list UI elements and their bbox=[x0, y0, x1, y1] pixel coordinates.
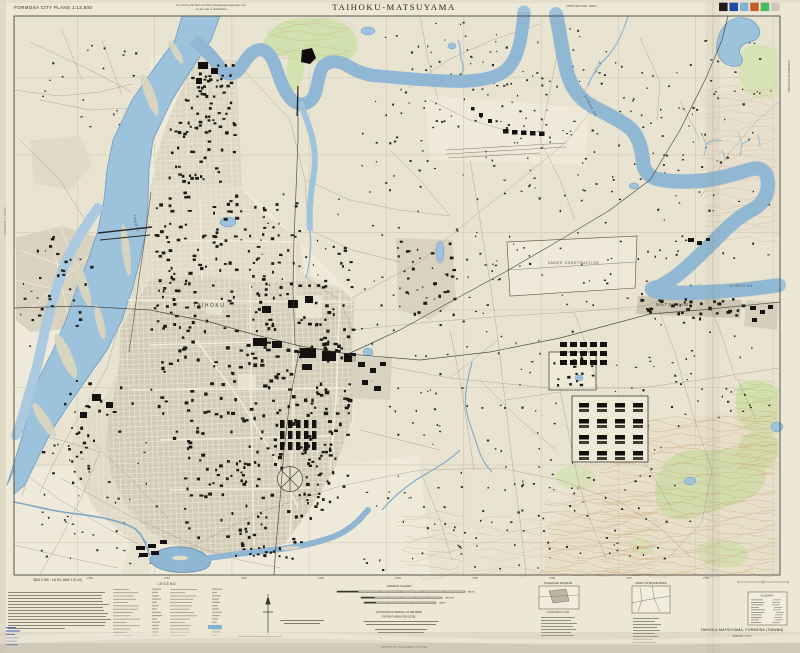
svg-text:2750: 2750 bbox=[87, 576, 93, 580]
svg-text:FORMOSA CITY PLANS 1:12,500: FORMOSA CITY PLANS 1:12,500 bbox=[14, 5, 92, 10]
svg-text:2751: 2751 bbox=[164, 576, 170, 580]
svg-text:TAIHOKU-MATSUYAMA: TAIHOKU-MATSUYAMA bbox=[787, 60, 791, 93]
svg-text:2754: 2754 bbox=[395, 576, 401, 580]
svg-text:TAIHOKU: TAIHOKU bbox=[193, 303, 225, 309]
svg-text:YARDS: YARDS bbox=[439, 602, 447, 605]
svg-text:MILES: MILES bbox=[468, 592, 475, 594]
svg-text:COMPILED IN 1944: COMPILED IN 1944 bbox=[547, 611, 570, 614]
svg-text:MATSUYAMA: MATSUYAMA bbox=[656, 302, 693, 307]
svg-text:2753: 2753 bbox=[318, 576, 324, 580]
svg-text:LEGEND: LEGEND bbox=[158, 582, 177, 586]
svg-text:2752: 2752 bbox=[241, 576, 247, 580]
svg-text:UNDER CONSTRUCTION: UNDER CONSTRUCTION bbox=[548, 261, 599, 265]
svg-text:KIIRUN KA: KIIRUN KA bbox=[730, 284, 753, 288]
svg-text:FIRST EDITION -AMS 1: FIRST EDITION -AMS 1 bbox=[566, 4, 598, 8]
svg-text:not for sale or distribution: not for sale or distribution bbox=[195, 7, 227, 11]
svg-text:DATUM IS MEAN SEA LEVEL: DATUM IS MEAN SEA LEVEL bbox=[382, 616, 416, 619]
svg-text:METERS: METERS bbox=[445, 598, 455, 600]
svg-text:INDEX TO BOUNDARIES: INDEX TO BOUNDARIES bbox=[635, 581, 666, 585]
svg-text:2755: 2755 bbox=[472, 576, 478, 580]
svg-text:TAIHOKU-MATSUYAMA: TAIHOKU-MATSUYAMA bbox=[332, 2, 456, 12]
svg-text:N: N bbox=[267, 593, 269, 597]
svg-text:GLOSSARY: GLOSSARY bbox=[760, 595, 774, 598]
svg-text:2757: 2757 bbox=[626, 576, 632, 580]
svg-text:GRAPHIC SCALES: GRAPHIC SCALES bbox=[387, 584, 412, 588]
svg-text:CONTOUR INTERVAL 10 METERS: CONTOUR INTERVAL 10 METERS bbox=[376, 610, 422, 614]
svg-text:2756: 2756 bbox=[549, 576, 555, 580]
svg-text:3816 II NW - 1st Ed.-AMS 1 (9: 3816 II NW - 1st Ed.-AMS 1 (9-44) bbox=[33, 578, 82, 582]
svg-text:COVERAGE DIAGRAM: COVERAGE DIAGRAM bbox=[544, 581, 573, 585]
